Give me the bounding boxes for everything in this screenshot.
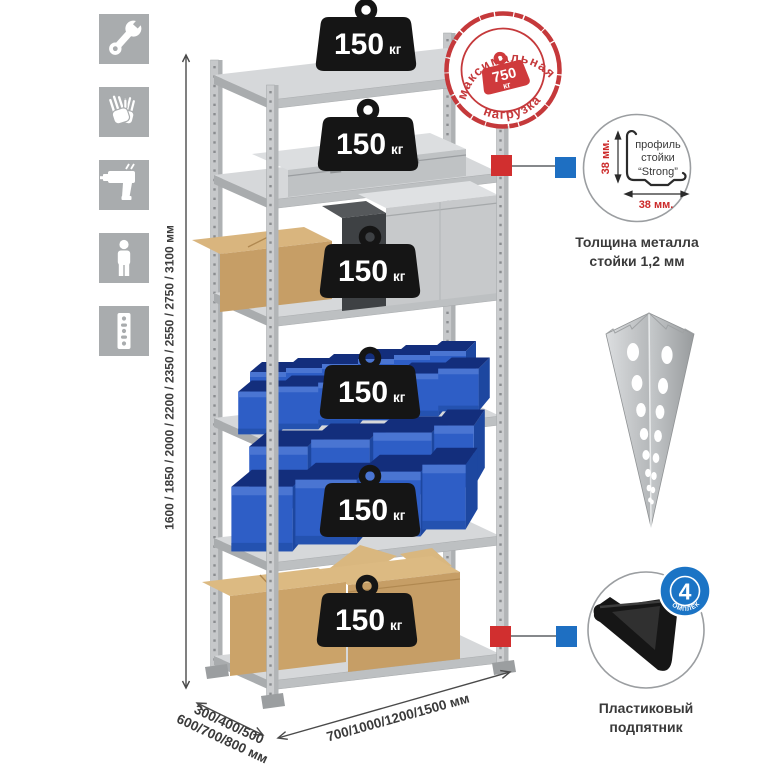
callout-marker-red <box>491 155 512 176</box>
foot-callout <box>490 626 577 647</box>
callout-marker-blue <box>556 626 577 647</box>
foot-caption-line1: Пластиковый <box>556 699 736 718</box>
weight-value: 150 <box>335 604 385 637</box>
kit-badge-value: 4 <box>679 579 692 605</box>
callout-marker-blue <box>555 157 576 178</box>
callout-marker-red <box>490 626 511 647</box>
weight-value: 150 <box>334 28 384 61</box>
weight-value: 150 <box>338 494 388 527</box>
profile-callout <box>491 155 576 178</box>
shelving-diagram: 150 кг 150 кг 150 кг 150 кг 150 кг <box>0 0 765 765</box>
profile-label-3: “Strong” <box>638 166 678 178</box>
angle-post-image <box>606 313 694 527</box>
weight-badge: 150 кг <box>318 102 418 171</box>
back-right-post <box>444 33 456 646</box>
profile-caption-line1: Толщина металла <box>547 233 727 252</box>
weight-badge: 150 кг <box>316 2 416 71</box>
front-right-post <box>497 58 509 672</box>
post-profile-circle: 38 мм. 38 мм. профиль стойки “Strong” <box>584 115 691 222</box>
weight-unit: кг <box>393 508 406 523</box>
weight-value: 150 <box>338 255 388 288</box>
weight-unit: кг <box>390 618 403 633</box>
front-left-post <box>267 85 279 705</box>
profile-label-2: стойки <box>641 152 675 164</box>
profile-caption-line2: стойки 1,2 мм <box>547 252 727 271</box>
weight-unit: кг <box>389 42 402 57</box>
weight-value: 150 <box>338 376 388 409</box>
profile-width-dim: 38 мм. <box>639 199 674 211</box>
foot-caption-line2: подпятник <box>556 718 736 737</box>
weight-unit: кг <box>391 142 404 157</box>
weight-value: 150 <box>336 128 386 161</box>
profile-height-dim: 38 мм. <box>600 140 612 175</box>
foot-caption: Пластиковый подпятник <box>556 699 736 737</box>
weight-unit: кг <box>393 390 406 405</box>
product-infographic: 1600 / 1850 / 2000 / 2200 / 2350 / 2550 … <box>0 0 765 765</box>
height-dimension-line <box>183 55 190 688</box>
profile-caption: Толщина металла стойки 1,2 мм <box>547 233 727 271</box>
weight-unit: кг <box>393 269 406 284</box>
profile-label-1: профиль <box>635 139 681 151</box>
